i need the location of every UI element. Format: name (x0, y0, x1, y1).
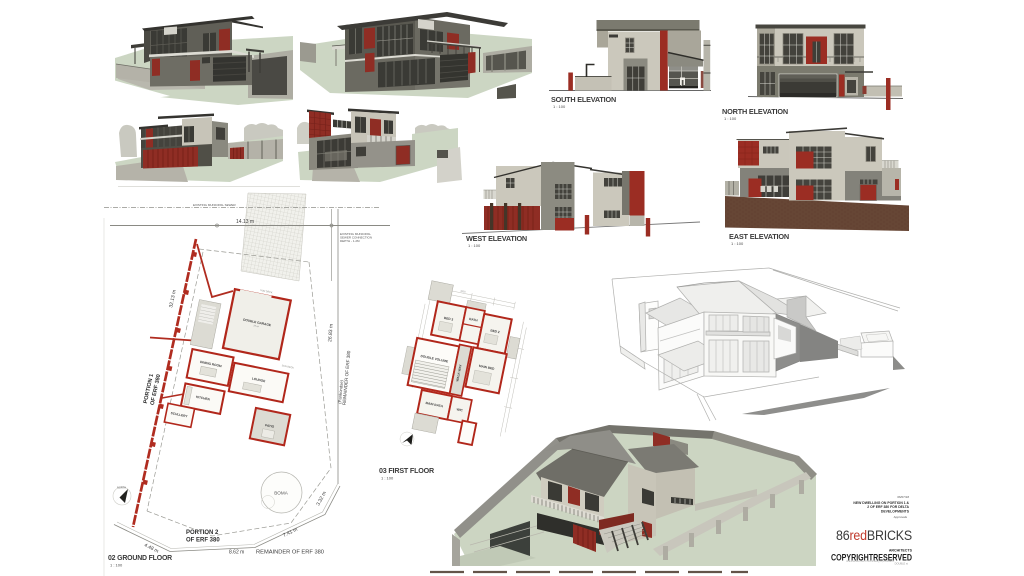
svg-text:DOUBLE st: DOUBLE st (895, 562, 909, 566)
svg-text:86redBRICKS: 86redBRICKS (836, 528, 912, 543)
svg-text:1 : 100: 1 : 100 (731, 241, 744, 246)
svg-text:BOMA: BOMA (274, 491, 288, 496)
svg-text:Unauthorised use of this drawi: Unauthorised use of this drawing is proh… (846, 560, 895, 563)
svg-text:14.13 m: 14.13 m (236, 219, 254, 225)
svg-text:SOUTH ELEVATION: SOUTH ELEVATION (551, 95, 616, 104)
svg-text:NORTH: NORTH (117, 486, 126, 490)
svg-text:02 GROUND FLOOR: 02 GROUND FLOOR (108, 553, 173, 562)
svg-text:1 : 100: 1 : 100 (381, 476, 394, 481)
svg-text:06/07/18: 06/07/18 (897, 495, 909, 499)
svg-text:1 : 100: 1 : 100 (110, 563, 123, 568)
svg-text:NORTH ELEVATION: NORTH ELEVATION (722, 107, 788, 116)
svg-text:Approvals: Approvals (894, 515, 908, 519)
svg-text:WEST ELEVATION: WEST ELEVATION (466, 234, 527, 243)
svg-text:1 : 100: 1 : 100 (468, 243, 481, 248)
svg-text:1 : 100: 1 : 100 (724, 116, 737, 121)
svg-text:DEVELOPMENTS: DEVELOPMENTS (881, 509, 910, 513)
svg-text:03 FIRST FLOOR: 03 FIRST FLOOR (379, 466, 435, 475)
svg-text:REMAINDER OF ERF 380: REMAINDER OF ERF 380 (256, 550, 324, 556)
svg-text:EAST ELEVATION: EAST ELEVATION (729, 232, 789, 241)
svg-text:8.62 m: 8.62 m (229, 550, 244, 556)
svg-text:DEPTH - 1.2M: DEPTH - 1.2M (340, 239, 360, 243)
svg-text:OF ERF 380: OF ERF 380 (186, 538, 220, 544)
svg-text:PORTION 2: PORTION 2 (186, 530, 219, 536)
svg-text:EXISTING MUNICIPAL SEWER: EXISTING MUNICIPAL SEWER (193, 203, 237, 207)
svg-text:1 : 100: 1 : 100 (553, 104, 566, 109)
